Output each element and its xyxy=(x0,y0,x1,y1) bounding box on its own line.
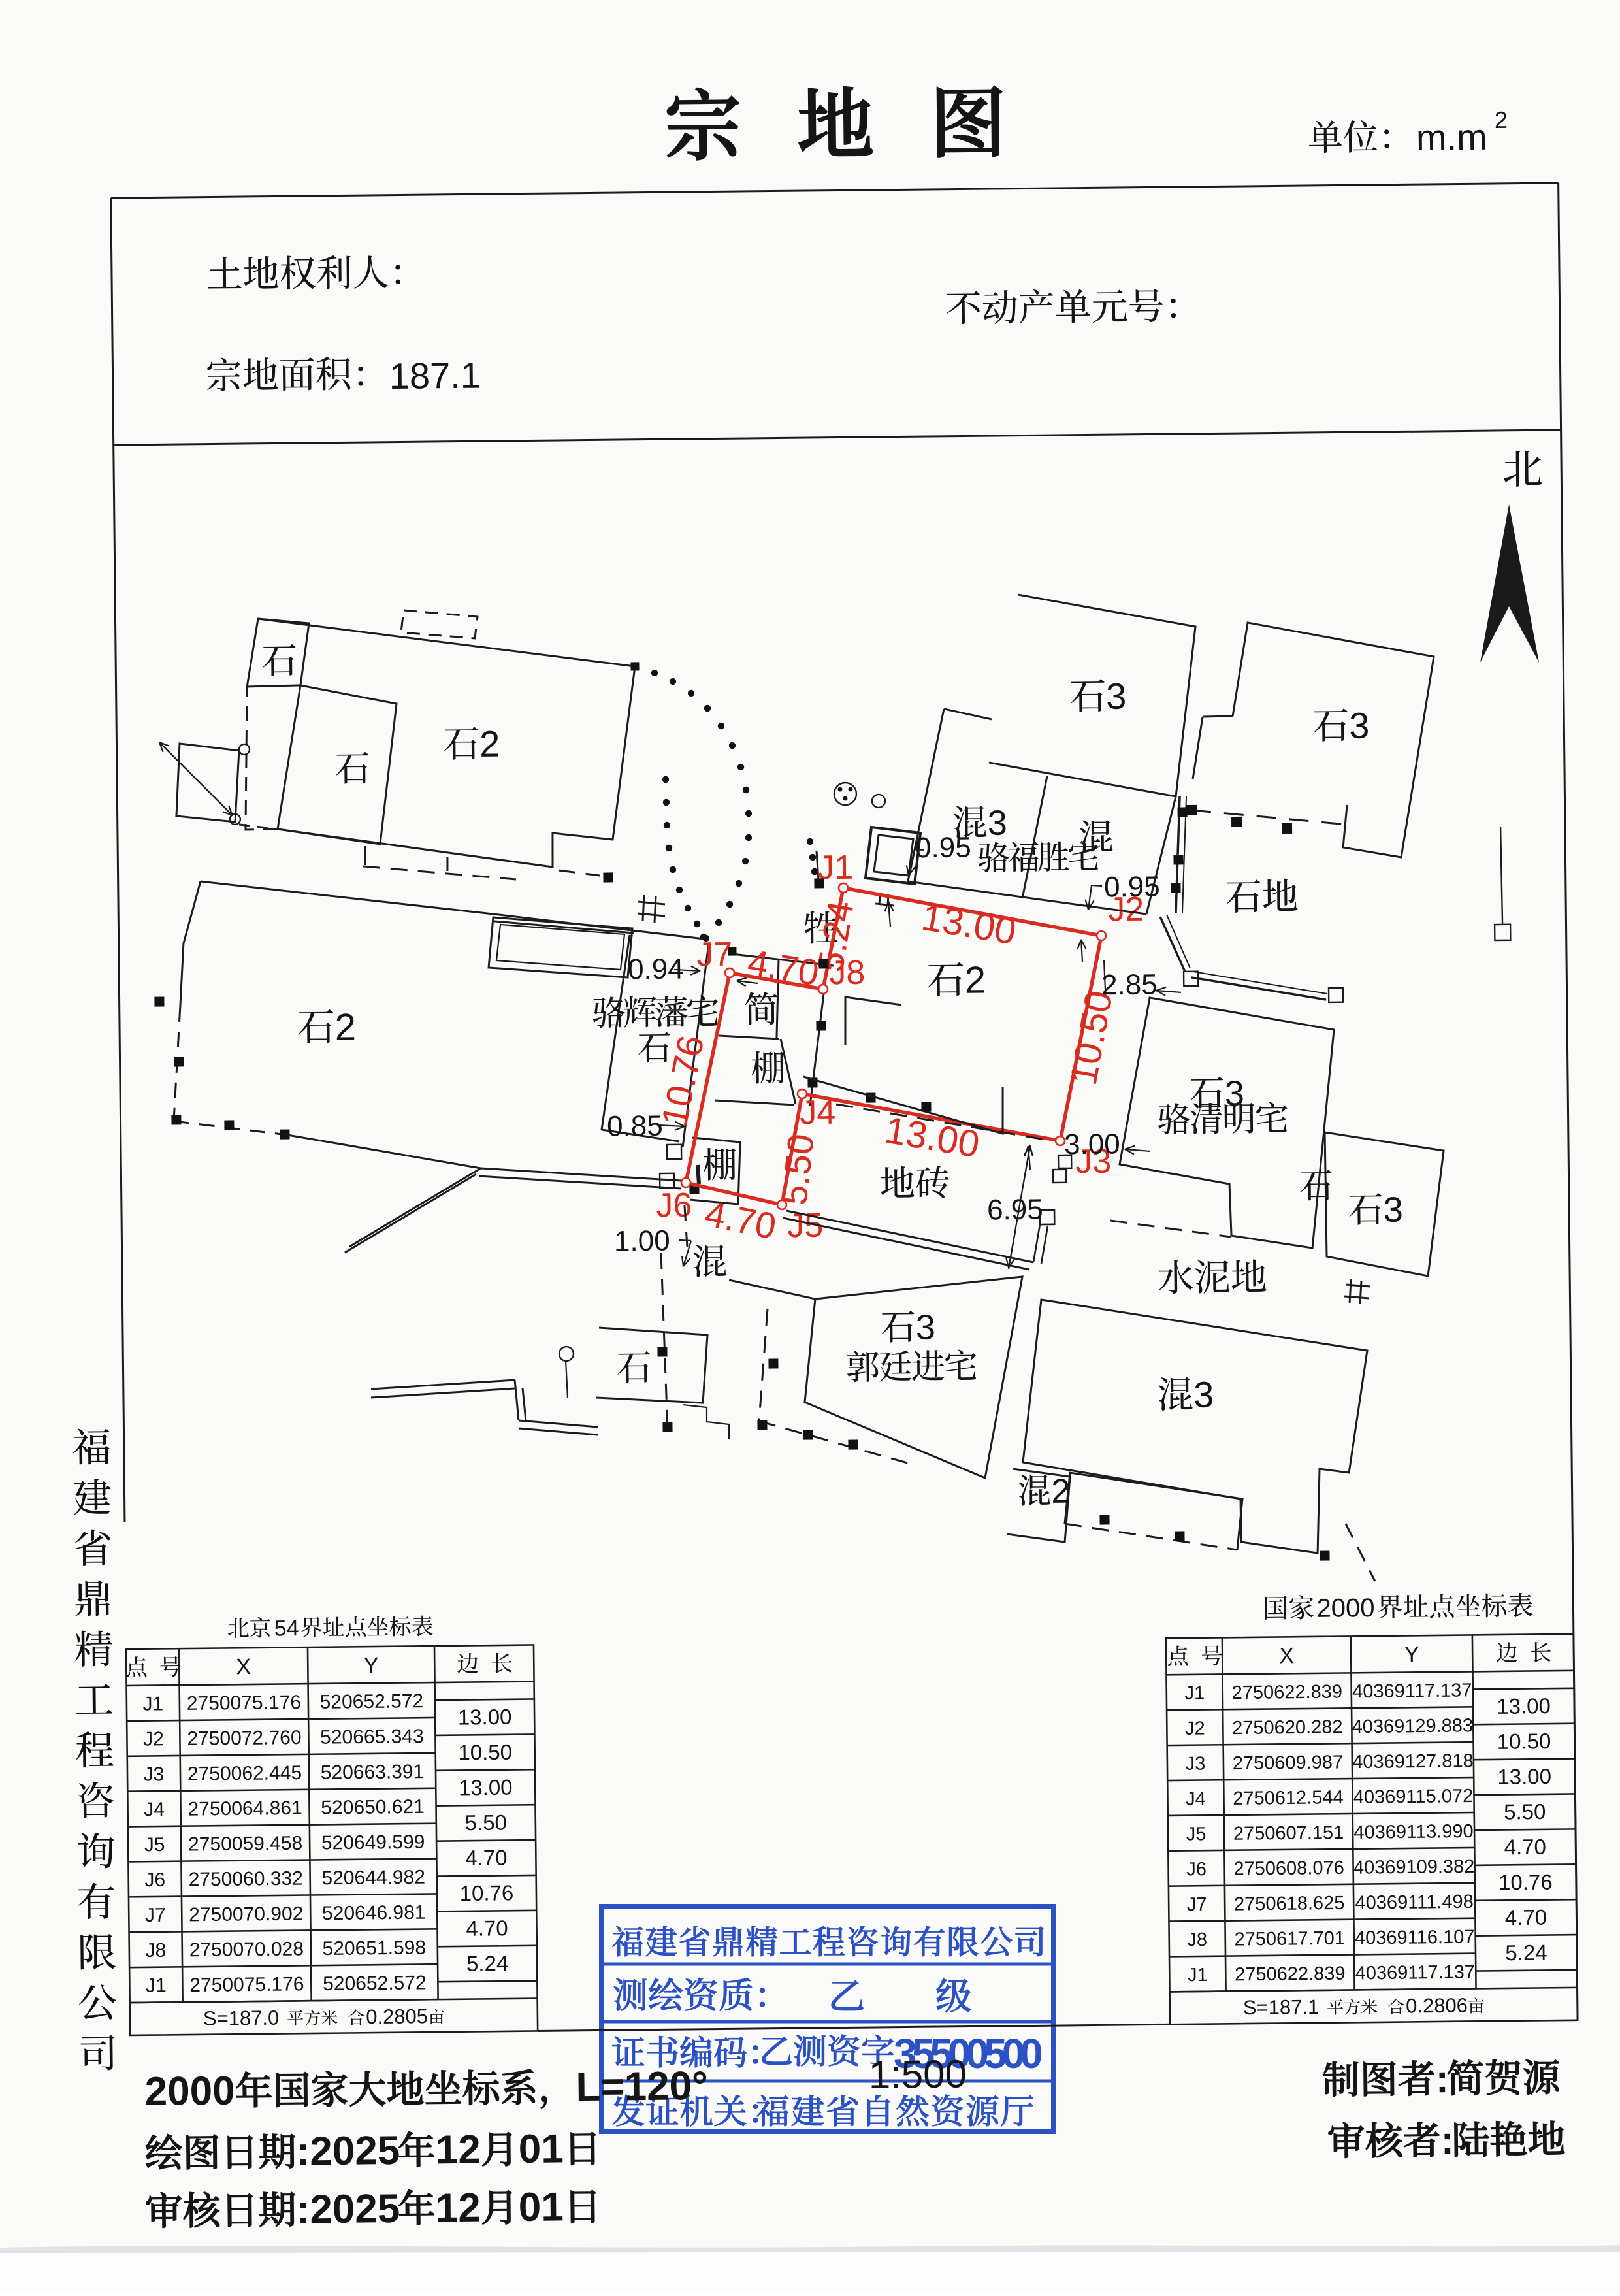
svg-text:L=120°: L=120° xyxy=(575,2063,708,2110)
svg-text:520650.621: 520650.621 xyxy=(321,1796,425,1819)
svg-text:187.1: 187.1 xyxy=(389,355,481,397)
svg-text:2: 2 xyxy=(1495,107,1508,133)
svg-text:5.24: 5.24 xyxy=(466,1951,509,1976)
svg-text:13.00: 13.00 xyxy=(1497,1694,1551,1718)
svg-text:J5: J5 xyxy=(144,1834,165,1856)
svg-text:2: 2 xyxy=(964,959,986,1001)
svg-text:4.70: 4.70 xyxy=(1504,1835,1546,1860)
svg-text:2750070.902: 2750070.902 xyxy=(189,1903,304,1926)
svg-text:J2: J2 xyxy=(143,1728,164,1750)
svg-text:J3: J3 xyxy=(144,1763,165,1785)
svg-text:0.2806: 0.2806 xyxy=(1406,1994,1468,2018)
svg-text:5.50: 5.50 xyxy=(1504,1799,1546,1824)
svg-text:2750609.987: 2750609.987 xyxy=(1233,1752,1344,1774)
svg-text:2750059.458: 2750059.458 xyxy=(188,1833,303,1856)
svg-text:10.50: 10.50 xyxy=(458,1740,512,1765)
svg-text:3: 3 xyxy=(1193,1374,1214,1415)
svg-text:6.95: 6.95 xyxy=(987,1194,1043,1226)
svg-text:Y: Y xyxy=(364,1653,379,1678)
svg-text::: : xyxy=(1440,2118,1454,2162)
svg-text:2: 2 xyxy=(334,1006,356,1049)
svg-text:Y: Y xyxy=(1404,1642,1419,1667)
svg-text:5.50: 5.50 xyxy=(465,1811,508,1835)
svg-text:3: 3 xyxy=(988,804,1008,843)
svg-text::2025: :2025 xyxy=(296,2186,400,2233)
svg-text:J7: J7 xyxy=(696,936,733,974)
svg-text:J1: J1 xyxy=(1184,1683,1205,1704)
svg-text:3: 3 xyxy=(1106,675,1127,716)
svg-text:2750060.332: 2750060.332 xyxy=(188,1868,303,1891)
svg-text:3: 3 xyxy=(916,1308,936,1347)
svg-text:2: 2 xyxy=(479,723,500,764)
svg-text:J8: J8 xyxy=(145,1940,166,1961)
svg-text:X: X xyxy=(236,1654,251,1679)
svg-text:4.70: 4.70 xyxy=(466,1916,508,1941)
svg-text:5.50: 5.50 xyxy=(773,1132,822,1207)
svg-text:J1: J1 xyxy=(146,1975,167,1996)
svg-text:2000: 2000 xyxy=(1316,1594,1374,1623)
svg-text:2750075.176: 2750075.176 xyxy=(187,1692,302,1714)
svg-text:J5: J5 xyxy=(1186,1824,1207,1845)
svg-text:520663.391: 520663.391 xyxy=(321,1761,425,1784)
svg-text:2750075.176: 2750075.176 xyxy=(189,1973,304,1996)
svg-text:10.50: 10.50 xyxy=(1497,1729,1551,1754)
svg-text:40369129.883: 40369129.883 xyxy=(1352,1715,1473,1737)
svg-text:2750618.625: 2750618.625 xyxy=(1234,1893,1345,1915)
svg-text:520652.572: 520652.572 xyxy=(319,1690,423,1713)
svg-text:13.00: 13.00 xyxy=(1497,1764,1551,1789)
svg-text:2750617.701: 2750617.701 xyxy=(1234,1928,1345,1950)
svg-text:520665.343: 520665.343 xyxy=(320,1726,424,1748)
svg-text:40369127.818: 40369127.818 xyxy=(1352,1750,1474,1773)
svg-text:40369117.137: 40369117.137 xyxy=(1355,1962,1475,1984)
svg-text:J4: J4 xyxy=(144,1799,165,1820)
svg-text:2750064.861: 2750064.861 xyxy=(187,1797,302,1820)
svg-text:40369113.990: 40369113.990 xyxy=(1353,1821,1474,1843)
svg-text:2.85: 2.85 xyxy=(1101,969,1158,1002)
svg-text:m.m: m.m xyxy=(1416,116,1488,158)
svg-text:2000: 2000 xyxy=(144,2069,235,2114)
svg-text:0.2805: 0.2805 xyxy=(366,2005,428,2028)
svg-text:2750070.028: 2750070.028 xyxy=(189,1938,304,1961)
svg-text:10.76: 10.76 xyxy=(1498,1870,1553,1895)
svg-text:520652.572: 520652.572 xyxy=(323,1972,427,1995)
svg-text:10.76: 10.76 xyxy=(459,1880,513,1905)
svg-text:4.70: 4.70 xyxy=(465,1845,508,1870)
svg-text::: : xyxy=(1435,2057,1449,2101)
svg-text:1:500: 1:500 xyxy=(868,2052,967,2097)
svg-text:40369116.107: 40369116.107 xyxy=(1355,1927,1475,1949)
svg-text:3: 3 xyxy=(1349,704,1370,746)
svg-text:01: 01 xyxy=(518,2126,564,2172)
svg-text:520649.599: 520649.599 xyxy=(321,1831,425,1854)
svg-text:2750062.445: 2750062.445 xyxy=(187,1762,302,1785)
svg-text:J7: J7 xyxy=(145,1905,166,1926)
svg-text:J8: J8 xyxy=(1187,1929,1207,1950)
svg-text:J6: J6 xyxy=(144,1869,165,1891)
svg-text:2750612.544: 2750612.544 xyxy=(1233,1787,1344,1809)
svg-text:520651.598: 520651.598 xyxy=(322,1937,426,1960)
svg-text:2750072.760: 2750072.760 xyxy=(187,1727,302,1750)
svg-text:S=187.1: S=187.1 xyxy=(1243,1995,1320,2019)
svg-text:2750608.076: 2750608.076 xyxy=(1233,1858,1344,1880)
svg-text:40369111.498: 40369111.498 xyxy=(1355,1892,1473,1914)
svg-text:5.24: 5.24 xyxy=(1505,1940,1547,1965)
svg-text:2750622.839: 2750622.839 xyxy=(1231,1681,1342,1703)
svg-text:12: 12 xyxy=(435,2127,481,2173)
svg-text:J1: J1 xyxy=(142,1693,163,1714)
svg-text:1.00: 1.00 xyxy=(614,1225,670,1258)
svg-text:2750607.151: 2750607.151 xyxy=(1233,1822,1344,1845)
svg-text:01: 01 xyxy=(518,2184,564,2230)
svg-text:J4: J4 xyxy=(800,1094,836,1132)
svg-text:X: X xyxy=(1279,1643,1294,1668)
svg-text:40369109.382: 40369109.382 xyxy=(1353,1856,1475,1878)
svg-text:2750620.282: 2750620.282 xyxy=(1232,1716,1343,1739)
svg-text:520646.981: 520646.981 xyxy=(322,1902,426,1925)
svg-text:12: 12 xyxy=(435,2186,481,2231)
svg-text:J1: J1 xyxy=(1188,1965,1208,1986)
svg-text:J3: J3 xyxy=(1185,1754,1205,1775)
svg-text:J2: J2 xyxy=(1185,1718,1205,1739)
svg-text:2: 2 xyxy=(1051,1473,1071,1511)
svg-text:13.00: 13.00 xyxy=(459,1775,513,1800)
svg-text:S=187.0: S=187.0 xyxy=(203,2007,280,2030)
svg-text:0.95: 0.95 xyxy=(915,831,971,864)
svg-text:54: 54 xyxy=(274,1616,299,1641)
svg-text:40369117.137: 40369117.137 xyxy=(1352,1680,1472,1702)
svg-text:J6: J6 xyxy=(656,1187,692,1225)
svg-text:J6: J6 xyxy=(1186,1859,1207,1880)
svg-text:J7: J7 xyxy=(1187,1894,1207,1915)
svg-text:13.00: 13.00 xyxy=(458,1705,512,1730)
svg-text:40369115.072: 40369115.072 xyxy=(1353,1786,1474,1808)
svg-text::2025: :2025 xyxy=(296,2128,400,2174)
svg-text:4.70: 4.70 xyxy=(1505,1905,1547,1930)
svg-text:0.95: 0.95 xyxy=(1104,871,1160,904)
svg-text:3.00: 3.00 xyxy=(1064,1128,1120,1161)
svg-text:3: 3 xyxy=(1384,1190,1404,1230)
svg-text:J4: J4 xyxy=(1186,1788,1206,1809)
svg-text:520644.982: 520644.982 xyxy=(321,1867,425,1890)
svg-text:2750622.839: 2750622.839 xyxy=(1235,1963,1346,1986)
